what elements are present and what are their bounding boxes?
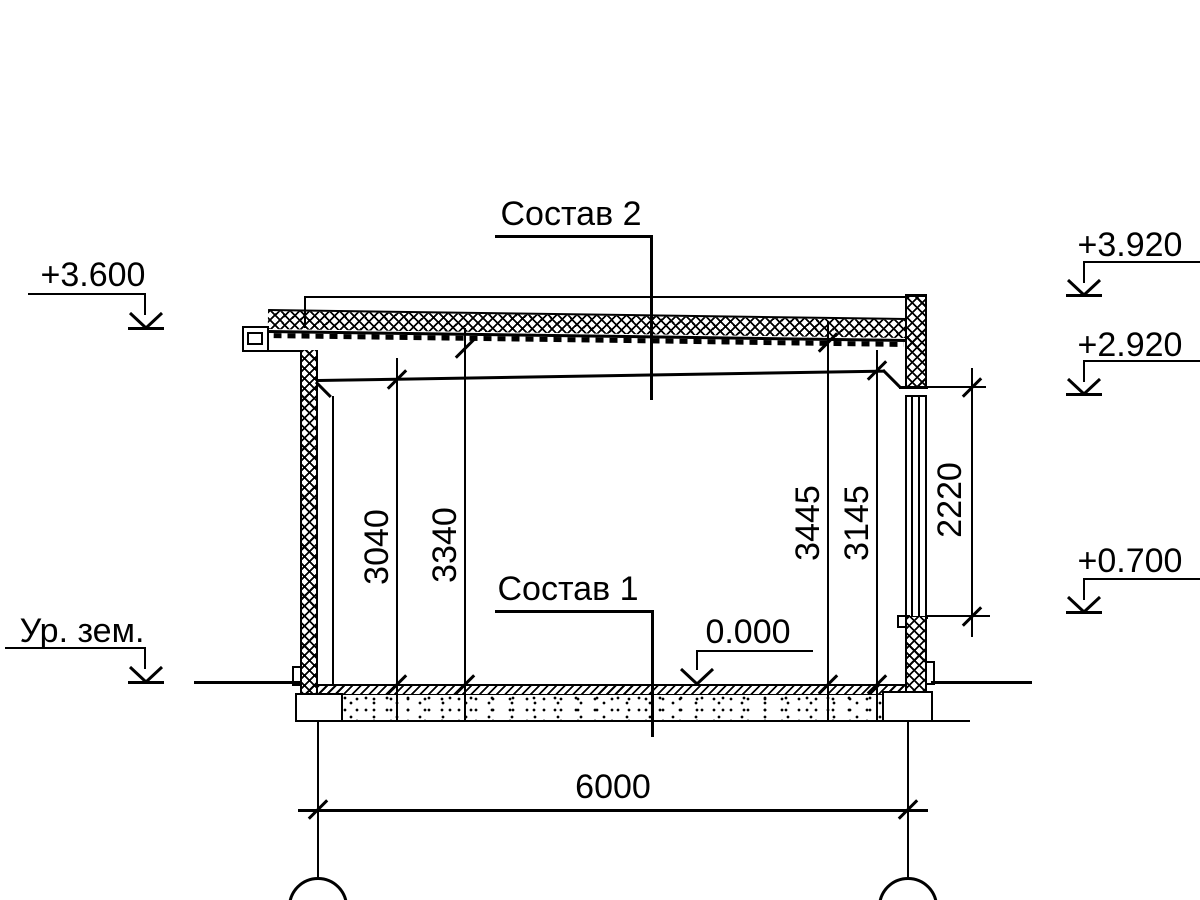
- composition-2-leader-underline: [495, 235, 652, 238]
- right-wall-below-window: [905, 617, 927, 694]
- window-frame-line-4: [925, 396, 928, 617]
- roof-assembly: [268, 309, 906, 350]
- elevation-window-head-base: [1066, 393, 1102, 396]
- parapet-level-line: [304, 296, 926, 298]
- composition-2-leader-drop: [650, 235, 653, 400]
- composition-1-label: Состав 1: [498, 572, 639, 606]
- right-parapet: [905, 294, 927, 388]
- elevation-parapet-underline: [1083, 261, 1200, 263]
- axis-bubble-right: [878, 877, 938, 900]
- elevation-parapet-base: [1066, 294, 1102, 297]
- elevation-window-sill-base: [1066, 611, 1102, 614]
- elevation-window-head-label: +2.920: [1078, 328, 1183, 362]
- composition-1-leader-underline: [495, 610, 652, 613]
- elevation-floor-zero-label: 0.000: [705, 615, 790, 649]
- window-frame-line-3: [918, 396, 920, 617]
- dim-2220-line: [971, 368, 973, 637]
- composition-1-leader-drop: [651, 610, 654, 737]
- dim-3340-label: 3340: [428, 507, 462, 583]
- foundation-right: [882, 691, 933, 722]
- elevation-roof-edge-underline: [28, 293, 146, 295]
- ground-level-underline: [5, 647, 146, 649]
- window-frame-line-2: [911, 396, 913, 617]
- window-head-line: [899, 386, 928, 389]
- roof-fascia-hole: [247, 332, 263, 345]
- axis-extension-right: [907, 722, 909, 877]
- dim-2220-ext-top: [926, 386, 986, 388]
- dim-3340-line: [464, 328, 466, 720]
- dim-span-line: [298, 809, 928, 812]
- dim-2220-label: 2220: [933, 462, 967, 538]
- axis-bubble-left: [288, 877, 348, 900]
- underslab-bottom-line: [296, 720, 970, 722]
- elevation-floor-zero-underline: [697, 650, 813, 652]
- dim-3445-line: [827, 322, 829, 720]
- composition-2-label: Состав 2: [501, 197, 642, 231]
- window-frame-line-1: [905, 396, 907, 617]
- left-wall: [300, 350, 318, 694]
- foundation-left: [295, 693, 343, 722]
- elevation-window-sill-underline: [1083, 578, 1200, 580]
- ground-level-base: [128, 681, 164, 684]
- sand-bed: [342, 695, 883, 721]
- dim-3145-line: [876, 350, 878, 720]
- ground-level-label: Ур. зем.: [20, 614, 145, 648]
- section-drawing: 6000 3040 3340 3445 3145 2220 Состав 2 С…: [0, 0, 1200, 900]
- dim-span-label: 6000: [575, 770, 651, 804]
- elevation-floor-zero-stem: [696, 650, 698, 670]
- elevation-parapet-label: +3.920: [1078, 228, 1183, 262]
- roof-fascia-profile: [242, 326, 269, 352]
- elevation-roof-edge-base: [128, 327, 164, 330]
- soffit-line: [242, 350, 302, 352]
- elevation-window-head-underline: [1083, 360, 1200, 362]
- ground-line-left: [194, 681, 300, 684]
- elevation-arrow-icon: [679, 668, 715, 685]
- dim-2220-ext-bottom: [926, 615, 990, 617]
- dim-3040-label: 3040: [360, 509, 394, 585]
- parapet-level-drop: [304, 296, 306, 328]
- dim-3145-label: 3145: [840, 485, 874, 561]
- left-inner-post-line: [332, 396, 334, 685]
- ground-line-right: [931, 681, 1032, 684]
- dim-3040-line: [396, 358, 398, 720]
- elevation-window-sill-label: +0.700: [1078, 544, 1183, 578]
- axis-extension-left: [317, 722, 319, 877]
- elevation-roof-edge-label: +3.600: [41, 258, 146, 292]
- dim-3445-label: 3445: [791, 485, 825, 561]
